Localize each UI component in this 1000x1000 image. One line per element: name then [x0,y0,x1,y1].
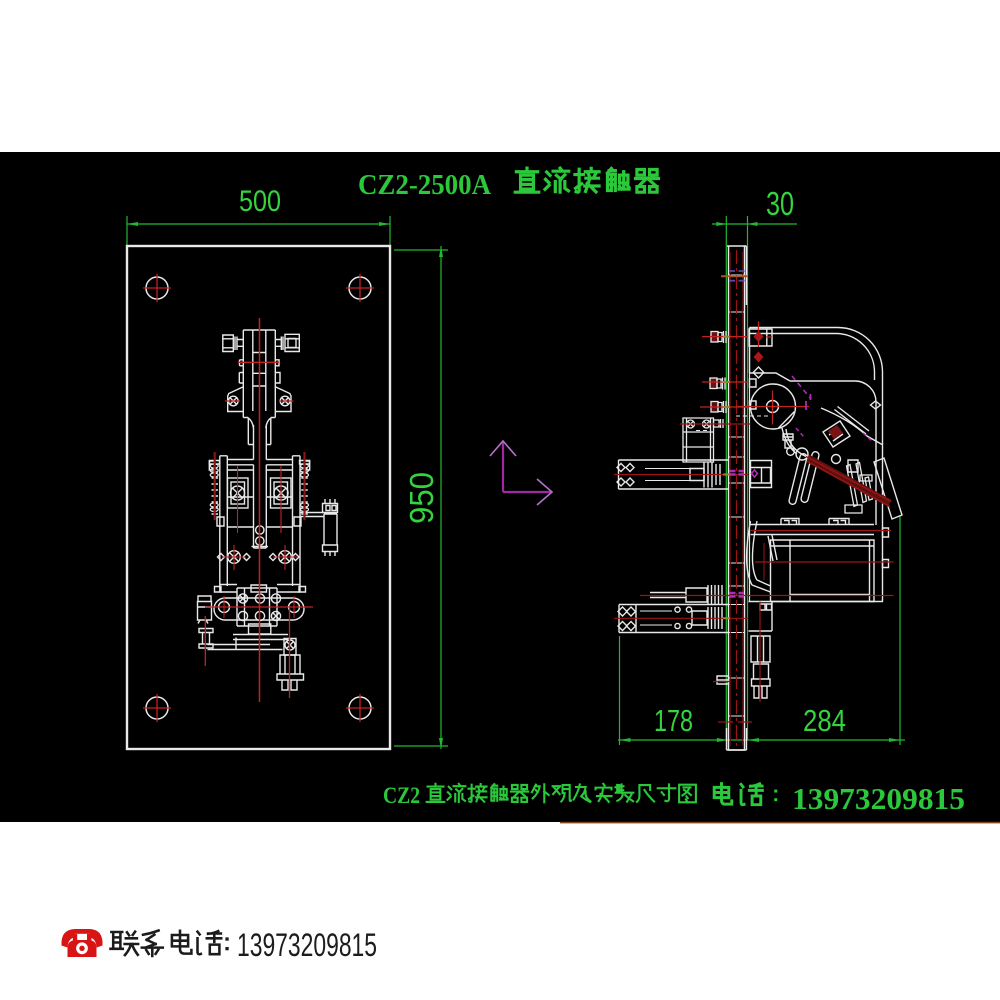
svg-text:CZ2: CZ2 [383,783,420,808]
svg-text:CZ2-2500A: CZ2-2500A [358,169,491,201]
svg-text:30: 30 [766,185,794,222]
svg-text:13973209815: 13973209815 [792,781,965,816]
svg-text:178: 178 [654,703,693,738]
svg-text:13973209815: 13973209815 [237,927,377,963]
svg-text:284: 284 [803,703,846,738]
svg-text:500: 500 [239,185,281,218]
svg-text:950: 950 [403,472,440,524]
